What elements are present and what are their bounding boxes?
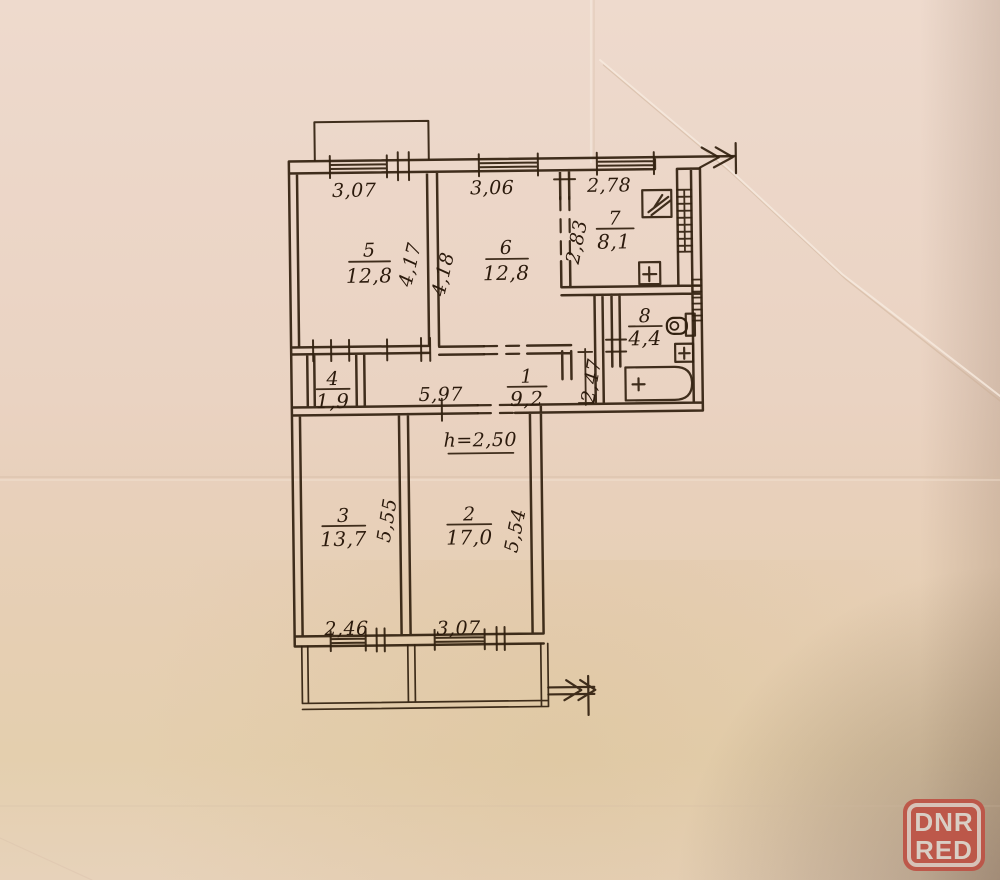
room-2-number: 2: [462, 503, 475, 525]
dim-room2-width: 3,07: [436, 617, 481, 640]
room-3-area: 13,7: [320, 527, 367, 552]
room-6-area: 12,8: [483, 261, 530, 286]
plan-photo-svg: 3,07 3,06 2,78 4,17 4,18 2,83 5,97 2,47 …: [0, 0, 1000, 880]
dim-room5-width: 3,07: [332, 179, 377, 202]
dim-room3-width: 2,46: [323, 618, 369, 641]
room-4-area: 1,9: [316, 389, 350, 413]
room-2-area: 17,0: [446, 525, 493, 550]
room-7-number: 7: [608, 208, 621, 230]
scanned-floor-plan-photo: 3,07 3,06 2,78 4,17 4,18 2,83 5,97 2,47 …: [0, 0, 1000, 880]
room-6-number: 6: [500, 237, 512, 259]
dim-kitchen-width: 2,78: [586, 174, 632, 197]
watermark-badge: DNR RED: [903, 799, 985, 871]
room-1-area: 9,2: [510, 386, 544, 410]
room-3-number: 3: [337, 505, 349, 527]
dim-hall-width: 5,97: [418, 383, 463, 406]
room-5-area: 12,8: [346, 263, 393, 288]
watermark-line1: DNR: [914, 807, 973, 837]
room-1-number: 1: [520, 366, 532, 388]
watermark-line2: RED: [915, 835, 973, 865]
room-7-area: 8,1: [597, 229, 631, 253]
room-8-area: 4,4: [627, 326, 662, 350]
dim-room6-width: 3,06: [470, 177, 515, 200]
ceiling-height-note: h=2,50: [443, 429, 517, 452]
room-5-number: 5: [363, 240, 375, 262]
room-4-number: 4: [325, 368, 338, 390]
room-8-number: 8: [639, 305, 651, 327]
